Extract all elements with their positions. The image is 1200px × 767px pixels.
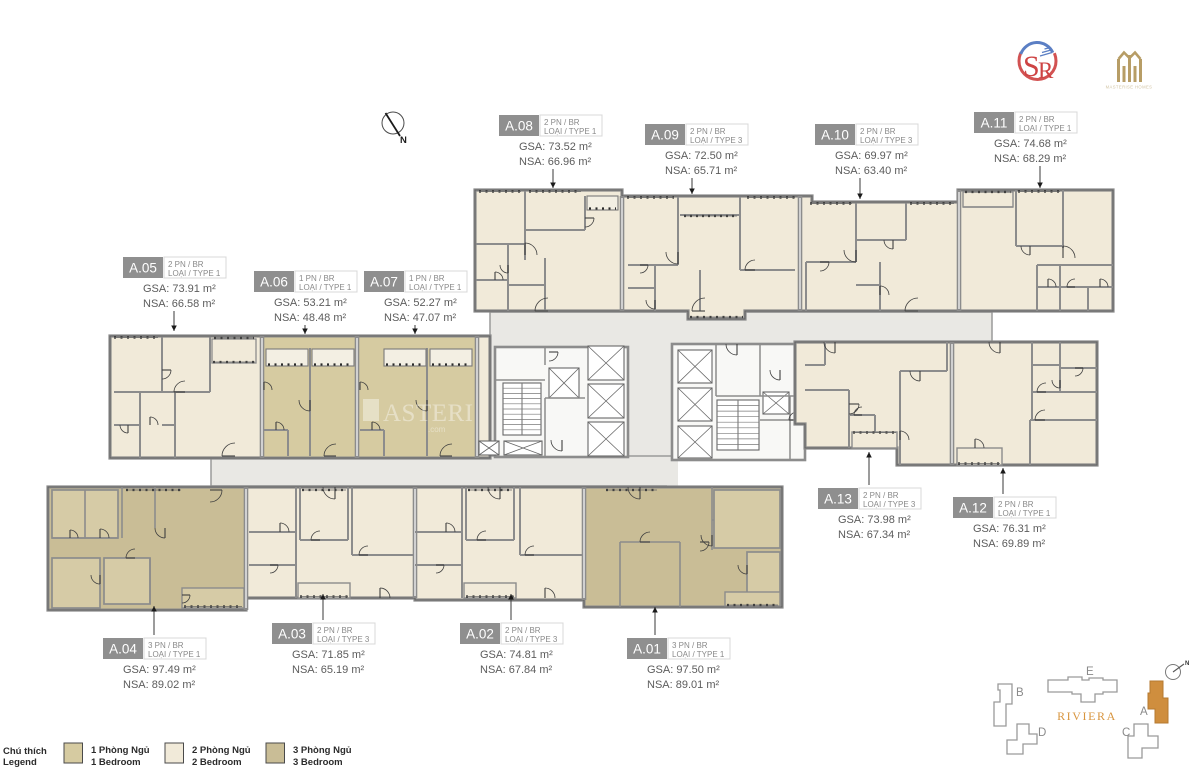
svg-text:NSA: 89.02 m²: NSA: 89.02 m²	[123, 679, 195, 691]
svg-text:N: N	[1185, 661, 1189, 667]
svg-text:LOẠI / TYPE 3: LOẠI / TYPE 3	[317, 635, 370, 644]
svg-text:A.09: A.09	[651, 128, 679, 143]
svg-text:LOẠI / TYPE 3: LOẠI / TYPE 3	[860, 136, 913, 145]
svg-text:A.03: A.03	[278, 627, 306, 642]
svg-text:3 Phòng Ngủ: 3 Phòng Ngủ	[293, 745, 352, 756]
svg-text:A.04: A.04	[109, 642, 137, 657]
svg-text:MASTERISE HOMES: MASTERISE HOMES	[1106, 85, 1153, 90]
svg-text:A.08: A.08	[505, 119, 533, 134]
svg-text:GSA: 74.68 m²: GSA: 74.68 m²	[994, 138, 1067, 150]
svg-text:1 Phòng Ngủ: 1 Phòng Ngủ	[91, 745, 150, 756]
svg-text:GSA: 69.97 m²: GSA: 69.97 m²	[835, 150, 908, 162]
svg-text:2 PN / BR: 2 PN / BR	[690, 127, 726, 136]
svg-text:NSA: 65.19 m²: NSA: 65.19 m²	[292, 664, 364, 676]
svg-text:.com: .com	[428, 425, 446, 434]
svg-text:3 PN / BR: 3 PN / BR	[672, 641, 708, 650]
svg-text:2 PN / BR: 2 PN / BR	[505, 626, 541, 635]
svg-text:1 PN / BR: 1 PN / BR	[299, 274, 335, 283]
svg-text:GSA: 97.50 m²: GSA: 97.50 m²	[647, 664, 720, 676]
svg-text:LOẠI / TYPE 1: LOẠI / TYPE 1	[409, 283, 462, 292]
svg-text:R: R	[1038, 58, 1054, 83]
svg-text:2 PN / BR: 2 PN / BR	[544, 118, 580, 127]
svg-text:RIVIERA: RIVIERA	[1057, 709, 1117, 723]
svg-text:1 Bedroom: 1 Bedroom	[91, 757, 141, 767]
svg-text:3 PN / BR: 3 PN / BR	[148, 641, 184, 650]
svg-text:2 PN / BR: 2 PN / BR	[1019, 115, 1055, 124]
svg-text:D: D	[1038, 727, 1046, 739]
svg-text:NSA: 67.34 m²: NSA: 67.34 m²	[838, 529, 910, 541]
svg-text:LOẠI / TYPE 1: LOẠI / TYPE 1	[299, 283, 352, 292]
svg-text:NSA: 47.07 m²: NSA: 47.07 m²	[384, 312, 456, 324]
svg-text:GSA: 73.98 m²: GSA: 73.98 m²	[838, 514, 911, 526]
svg-text:2 Bedroom: 2 Bedroom	[192, 757, 242, 767]
svg-text:E: E	[1086, 666, 1094, 678]
svg-text:NSA: 69.89 m²: NSA: 69.89 m²	[973, 538, 1045, 550]
svg-text:LOẠI / TYPE 3: LOẠI / TYPE 3	[863, 500, 916, 509]
svg-text:GSA: 72.50 m²: GSA: 72.50 m²	[665, 150, 738, 162]
svg-text:3 Bedroom: 3 Bedroom	[293, 757, 343, 767]
svg-text:GSA: 52.27 m²: GSA: 52.27 m²	[384, 297, 457, 309]
svg-text:2 Phòng Ngủ: 2 Phòng Ngủ	[192, 745, 251, 756]
svg-text:2 PN / BR: 2 PN / BR	[317, 626, 353, 635]
svg-text:A.01: A.01	[633, 642, 661, 657]
svg-text:LOẠI / TYPE 1: LOẠI / TYPE 1	[148, 650, 201, 659]
svg-text:2 PN / BR: 2 PN / BR	[998, 500, 1034, 509]
svg-text:1 PN / BR: 1 PN / BR	[409, 274, 445, 283]
svg-text:Legend: Legend	[3, 757, 37, 767]
svg-text:A.11: A.11	[981, 116, 1008, 131]
svg-text:A: A	[1140, 706, 1148, 718]
svg-text:2 PN / BR: 2 PN / BR	[863, 491, 899, 500]
svg-text:NSA: 68.29 m²: NSA: 68.29 m²	[994, 153, 1066, 165]
svg-text:NSA: 65.71 m²: NSA: 65.71 m²	[665, 165, 737, 177]
svg-text:NSA: 67.84 m²: NSA: 67.84 m²	[480, 664, 552, 676]
svg-text:2 PN / BR: 2 PN / BR	[168, 260, 204, 269]
svg-text:ASTERI: ASTERI	[383, 400, 474, 427]
svg-text:NSA: 63.40 m²: NSA: 63.40 m²	[835, 165, 907, 177]
svg-text:A.10: A.10	[821, 128, 849, 143]
svg-text:GSA: 74.81 m²: GSA: 74.81 m²	[480, 649, 553, 661]
svg-text:C: C	[1122, 727, 1130, 739]
svg-text:A.05: A.05	[129, 261, 157, 276]
svg-text:LOẠI / TYPE 3: LOẠI / TYPE 3	[505, 635, 558, 644]
svg-text:A.06: A.06	[260, 275, 288, 290]
svg-text:Chú thích: Chú thích	[3, 746, 47, 757]
svg-text:LOẠI / TYPE 1: LOẠI / TYPE 1	[1019, 124, 1072, 133]
svg-text:2 PN / BR: 2 PN / BR	[860, 127, 896, 136]
svg-text:NSA: 66.58 m²: NSA: 66.58 m²	[143, 298, 215, 310]
svg-text:A.02: A.02	[466, 627, 494, 642]
svg-text:NSA: 66.96 m²: NSA: 66.96 m²	[519, 156, 591, 168]
svg-text:GSA: 97.49 m²: GSA: 97.49 m²	[123, 664, 196, 676]
svg-text:LOẠI / TYPE 1: LOẠI / TYPE 1	[998, 509, 1051, 518]
svg-text:GSA: 76.31 m²: GSA: 76.31 m²	[973, 523, 1046, 535]
svg-text:N: N	[400, 135, 407, 146]
svg-text:LOẠI / TYPE 1: LOẠI / TYPE 1	[168, 269, 221, 278]
svg-text:NSA: 48.48 m²: NSA: 48.48 m²	[274, 312, 346, 324]
svg-text:A.07: A.07	[370, 275, 398, 290]
svg-text:GSA: 73.52 m²: GSA: 73.52 m²	[519, 141, 592, 153]
svg-text:LOẠI / TYPE 1: LOẠI / TYPE 1	[672, 650, 725, 659]
svg-text:A.12: A.12	[959, 501, 987, 516]
svg-text:GSA: 71.85 m²: GSA: 71.85 m²	[292, 649, 365, 661]
svg-text:GSA: 53.21 m²: GSA: 53.21 m²	[274, 297, 347, 309]
svg-text:LOẠI / TYPE 3: LOẠI / TYPE 3	[690, 136, 743, 145]
svg-text:A.13: A.13	[824, 492, 852, 507]
svg-text:NSA: 89.01 m²: NSA: 89.01 m²	[647, 679, 719, 691]
svg-text:GSA: 73.91 m²: GSA: 73.91 m²	[143, 283, 216, 295]
svg-text:LOẠI / TYPE 1: LOẠI / TYPE 1	[544, 127, 597, 136]
svg-text:B: B	[1016, 687, 1024, 699]
